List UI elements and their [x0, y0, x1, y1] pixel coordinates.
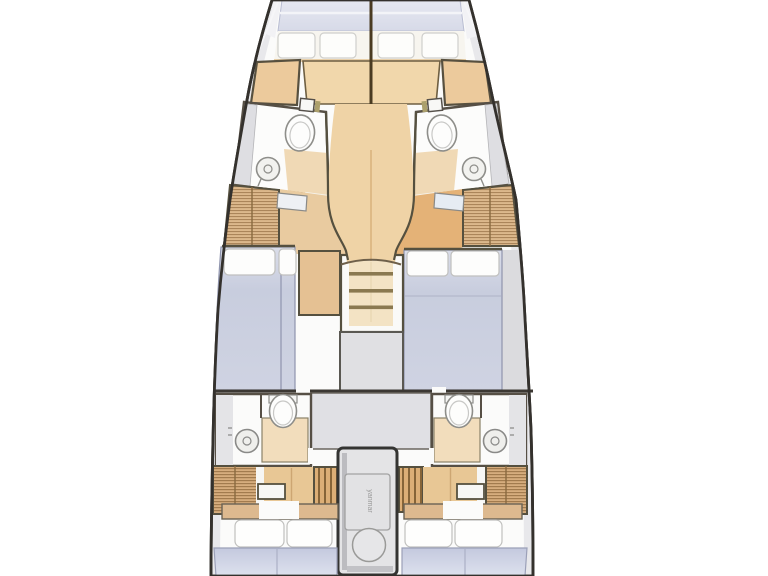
svg-text:yanmar: yanmar	[366, 489, 373, 513]
